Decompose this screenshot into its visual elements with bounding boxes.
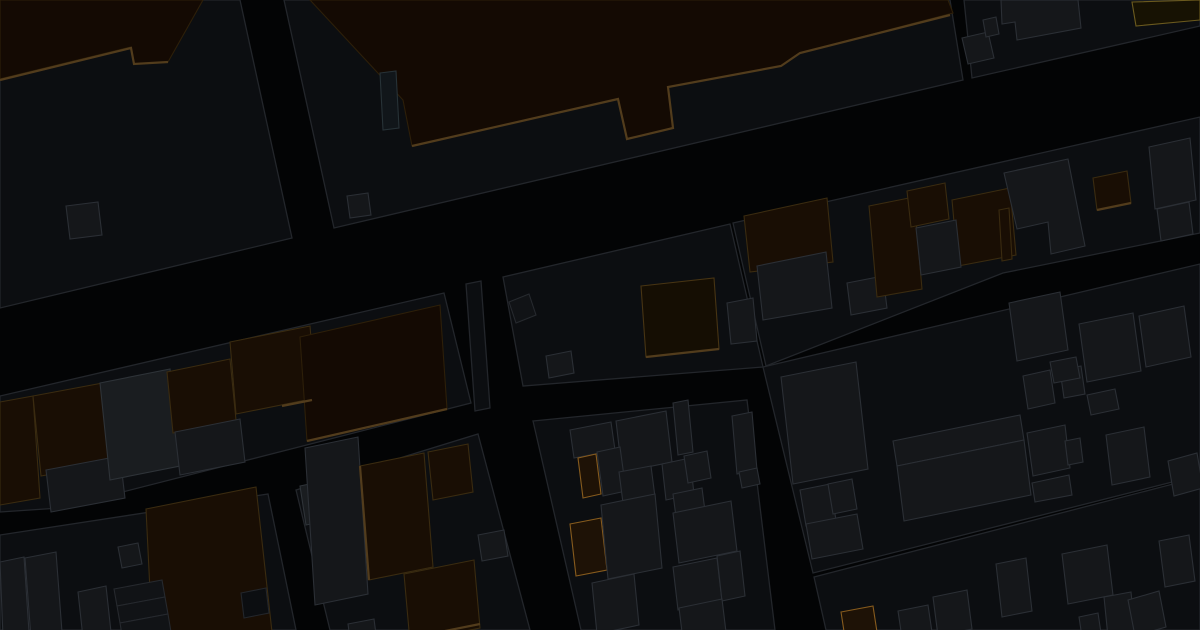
building-gray [983, 17, 999, 37]
building-gray [1023, 370, 1055, 409]
building-gray [1139, 306, 1191, 367]
building-notch [241, 588, 269, 618]
building-gray [78, 586, 111, 630]
building-gray [592, 574, 639, 630]
map-viewport[interactable] [0, 0, 1200, 630]
building-gray [25, 552, 62, 630]
building-gray [1157, 202, 1193, 241]
building-gray [347, 193, 371, 218]
building-gray [732, 412, 757, 474]
building-gray [66, 202, 102, 239]
building-gray [916, 220, 961, 275]
building-gray [601, 494, 662, 579]
building-gray [0, 557, 29, 630]
building-gray [1027, 425, 1070, 476]
building-gray [1065, 438, 1083, 465]
block-mid-center [503, 224, 763, 386]
building-gray [739, 468, 760, 488]
building-gray [1062, 545, 1113, 604]
building-gray [828, 479, 857, 514]
city-map[interactable] [0, 0, 1200, 630]
building-gray [118, 543, 142, 568]
building-gray [305, 437, 368, 605]
building-gray [616, 411, 672, 472]
building-gray [727, 298, 757, 344]
building-gray [1079, 313, 1141, 382]
building-gray [684, 451, 711, 483]
building-gray [1106, 427, 1150, 485]
building-gray [996, 558, 1032, 617]
building-gray [1168, 453, 1200, 496]
building-gray [781, 362, 868, 484]
building-brown [907, 183, 949, 227]
building-gray [1159, 535, 1195, 587]
building-gray [1149, 138, 1196, 209]
building-brown [428, 444, 473, 500]
block-sliver [466, 281, 490, 411]
building-teal [380, 71, 399, 130]
building-orange [570, 518, 607, 576]
building-gray [1050, 357, 1080, 383]
building-gray [933, 590, 972, 630]
building-gray [1009, 292, 1068, 361]
building-brown [0, 396, 40, 505]
building-brown_olive [641, 278, 719, 357]
building-gray [717, 551, 745, 601]
building-gray [478, 530, 508, 561]
building-gray [546, 351, 574, 378]
building-brown [360, 453, 433, 580]
